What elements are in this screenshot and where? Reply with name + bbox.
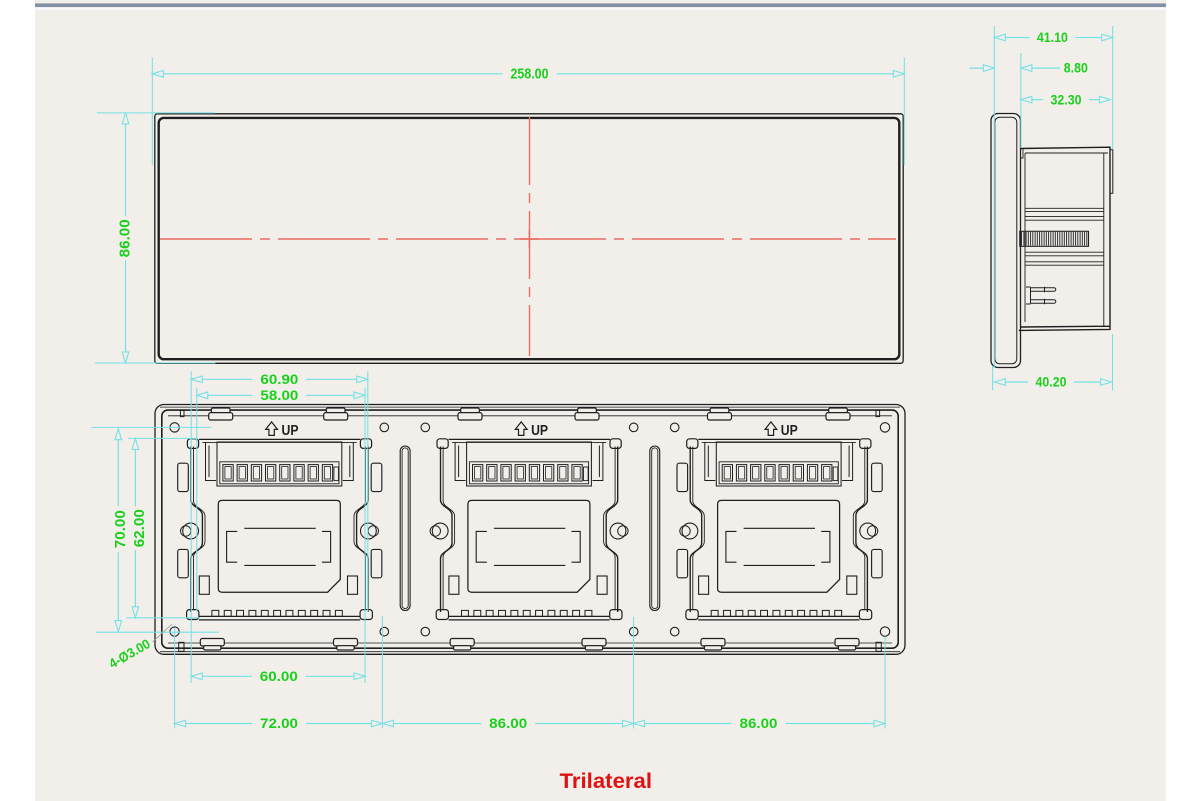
svg-text:60.90: 60.90 (260, 371, 298, 387)
svg-text:86.00: 86.00 (489, 715, 527, 731)
svg-text:8.80: 8.80 (1064, 60, 1088, 76)
svg-text:258.00: 258.00 (511, 67, 549, 83)
svg-text:86.00: 86.00 (117, 219, 134, 257)
svg-text:60.00: 60.00 (260, 668, 298, 684)
svg-text:70.00: 70.00 (112, 510, 129, 548)
svg-text:Trilateral: Trilateral (560, 769, 653, 793)
svg-text:62.00: 62.00 (131, 509, 148, 547)
svg-text:58.00: 58.00 (260, 387, 298, 403)
svg-text:32.30: 32.30 (1051, 91, 1082, 107)
svg-text:41.10: 41.10 (1037, 29, 1068, 45)
svg-text:72.00: 72.00 (260, 715, 298, 731)
svg-text:40.20: 40.20 (1036, 374, 1067, 390)
svg-text:86.00: 86.00 (740, 715, 778, 731)
